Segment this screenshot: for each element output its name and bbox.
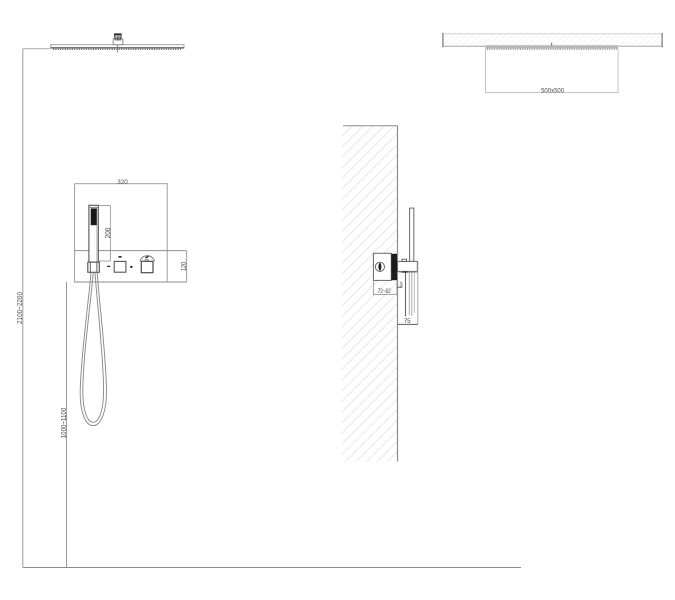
svg-text:2100~2200: 2100~2200: [17, 292, 24, 324]
svg-text:500x500: 500x500: [541, 87, 564, 94]
svg-text:72~82: 72~82: [378, 289, 392, 295]
svg-text:75: 75: [404, 318, 411, 325]
svg-text:200: 200: [105, 228, 112, 239]
svg-text:1000~1100: 1000~1100: [61, 408, 68, 439]
svg-text:120: 120: [181, 262, 188, 271]
svg-text:320: 320: [117, 179, 128, 186]
